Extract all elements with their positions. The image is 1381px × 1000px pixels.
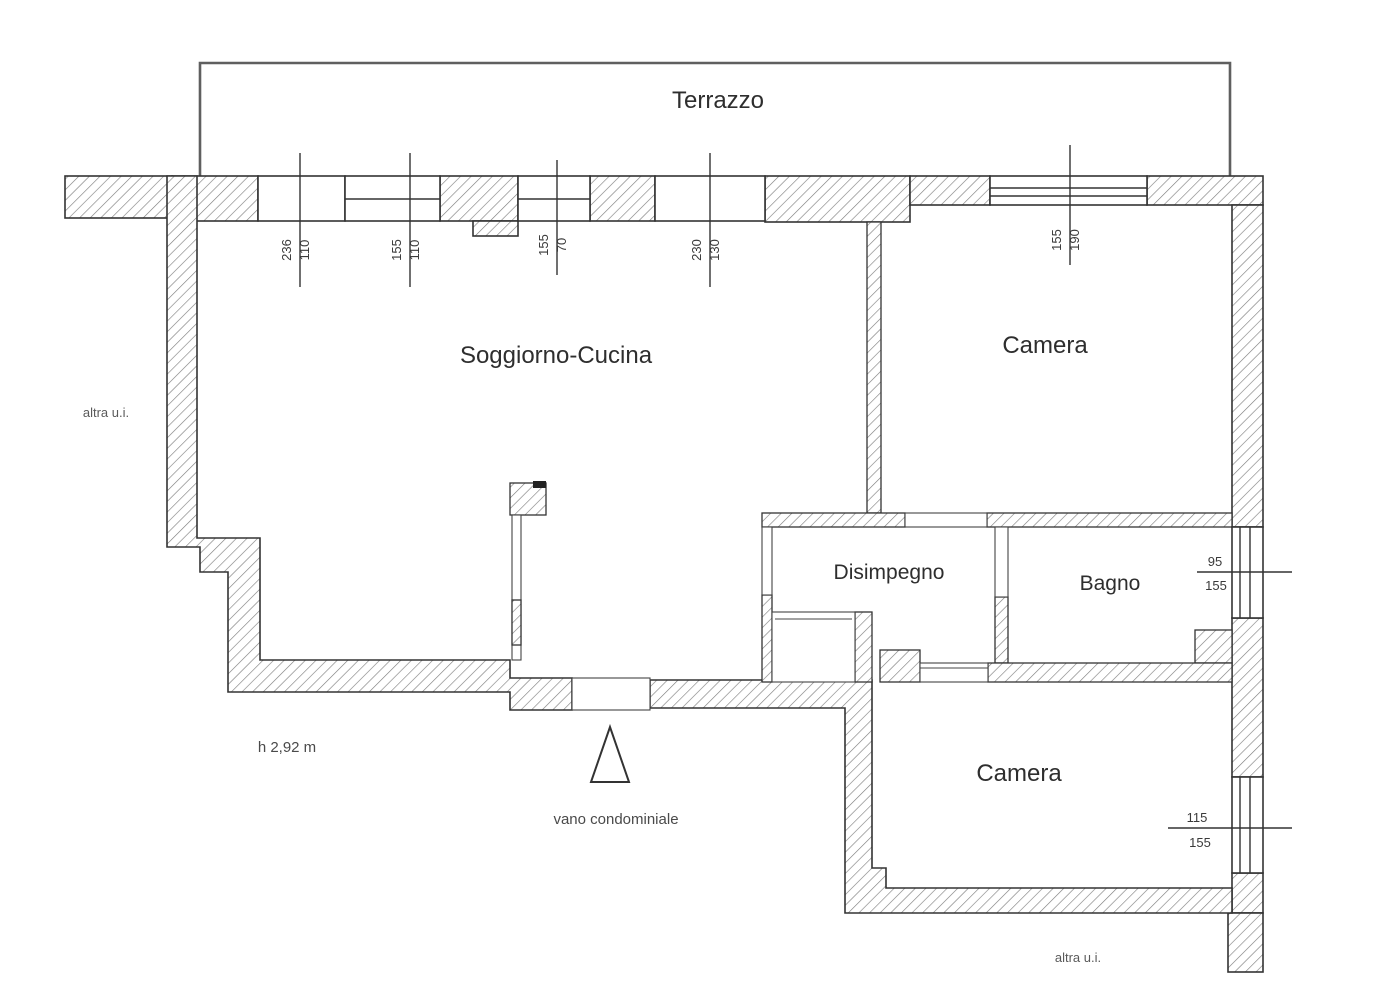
wall-top-pier-1 <box>440 176 518 221</box>
note-altra-ui-bottom: altra u.i. <box>1055 950 1101 965</box>
wall-top-corner-right <box>1147 176 1263 205</box>
dim-opening-1-height: 236 <box>279 239 294 261</box>
wall-stub-left <box>65 176 172 218</box>
dim-camera-nord-window-width: 190 <box>1067 229 1082 251</box>
floorplan-page: 110 236 110 155 70 155 130 230 190 155 9… <box>0 0 1381 1000</box>
door-disimpegno-camera-nord <box>905 513 987 527</box>
wall-disimpegno-top-right <box>987 513 1232 527</box>
room-label-disimpegno: Disimpegno <box>834 561 945 584</box>
room-label-camera-nord: Camera <box>1002 332 1088 359</box>
wall-camera-sud-top <box>988 663 1232 682</box>
wall-right-lower <box>1232 873 1263 913</box>
floorplan-canvas: 110 236 110 155 70 155 130 230 190 155 9… <box>0 0 1381 1000</box>
dim-camera-sud-window-width: 115 <box>1187 810 1208 825</box>
dim-opening-1-width: 110 <box>297 240 312 261</box>
wall-bagno-notch <box>1195 630 1232 663</box>
door-entrance <box>572 678 650 710</box>
french-door-1 <box>258 176 345 221</box>
dim-opening-2-height: 155 <box>389 239 404 261</box>
dim-camera-sud-window-height: 155 <box>1189 835 1211 850</box>
dim-opening-4-width: 130 <box>707 239 722 261</box>
wall-divider-bagno <box>995 597 1008 663</box>
dim-opening-3-width: 70 <box>554 238 569 252</box>
room-label-soggiorno: Soggiorno-Cucina <box>460 342 653 369</box>
room-label-bagno: Bagno <box>1080 572 1141 595</box>
wall-right-upper <box>1232 205 1263 527</box>
wall-step-camera-sud <box>880 650 920 682</box>
note-height: h 2,92 m <box>258 739 316 756</box>
dimension-ticks: 110 236 110 155 70 155 130 230 190 155 9… <box>279 145 1292 850</box>
wall-divider-camera-nord <box>867 222 881 513</box>
wall-left-and-bottom <box>167 176 572 710</box>
wall-disimpegno-left <box>762 595 772 682</box>
wall-right-stub-bottom <box>1228 913 1263 972</box>
door-disimpegno-bagno <box>995 527 1008 597</box>
door-disimpegno-camera-sud <box>920 663 988 682</box>
closet-outline <box>772 612 855 682</box>
dim-bagno-window-width: 95 <box>1208 554 1222 569</box>
terrace-label: Terrazzo <box>672 87 764 114</box>
terrace-outline <box>200 63 1230 176</box>
wall-top-pier-2 <box>590 176 655 221</box>
wall-bottom-strip <box>650 680 1232 913</box>
vano-triangle-icon <box>591 727 629 782</box>
door-soggiorno-disimpegno <box>762 527 772 595</box>
dim-camera-nord-window-height: 155 <box>1049 229 1064 251</box>
room-label-camera-sud: Camera <box>976 760 1062 787</box>
wall-closet-right <box>855 612 872 682</box>
dim-bagno-window-height: 155 <box>1205 578 1227 593</box>
doors <box>572 513 1008 710</box>
wall-disimpegno-top-left <box>762 513 905 527</box>
note-vano: vano condominiale <box>553 811 678 828</box>
wall-top-pier-3 <box>765 176 910 222</box>
wall-top-pier-3b <box>910 176 990 205</box>
dim-opening-4-height: 230 <box>689 239 704 261</box>
window-camera-sud <box>1232 777 1263 873</box>
wall-right-mid <box>1232 618 1263 777</box>
dim-opening-2-width: 110 <box>407 240 422 261</box>
window-camera-nord <box>990 176 1147 205</box>
wall-top-pier-1-notch <box>473 221 518 236</box>
kitchen-partition-hatch <box>512 600 521 645</box>
pillar-corner-mark <box>533 481 546 488</box>
note-altra-ui-left: altra u.i. <box>83 405 129 420</box>
dim-opening-3-height: 155 <box>536 234 551 256</box>
